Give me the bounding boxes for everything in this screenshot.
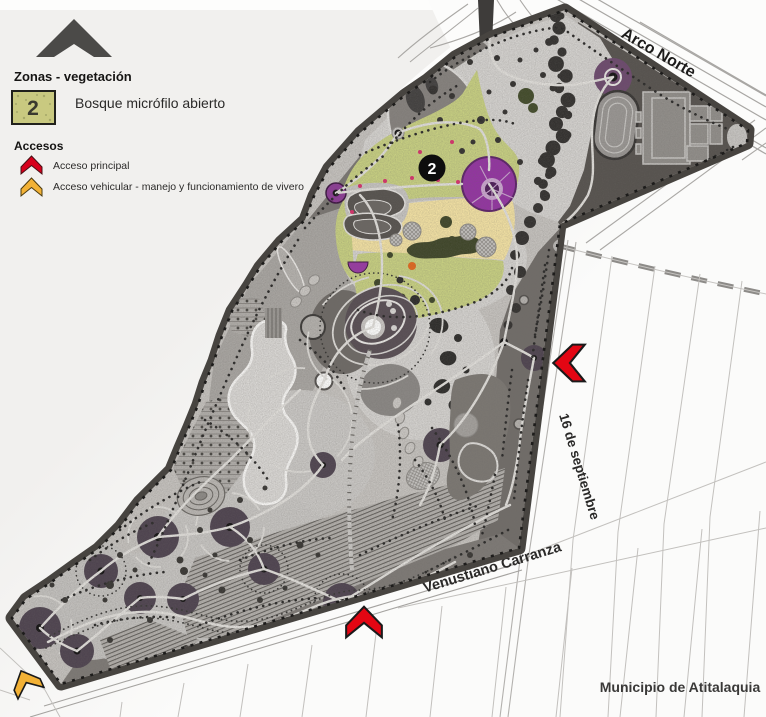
- svg-text:Zonas - vegetación: Zonas - vegetación: [14, 69, 132, 84]
- svg-text:Bosque micrófilo abierto: Bosque micrófilo abierto: [75, 95, 225, 111]
- svg-text:2: 2: [27, 97, 39, 120]
- svg-text:Municipio de Atitalaquia: Municipio de Atitalaquia: [600, 679, 761, 695]
- svg-text:2: 2: [428, 161, 437, 178]
- svg-text:Acceso vehicular - manejo y fu: Acceso vehicular - manejo y funcionamien…: [53, 181, 304, 193]
- svg-text:Accesos: Accesos: [14, 139, 64, 153]
- svg-text:Acceso principal: Acceso principal: [53, 160, 129, 172]
